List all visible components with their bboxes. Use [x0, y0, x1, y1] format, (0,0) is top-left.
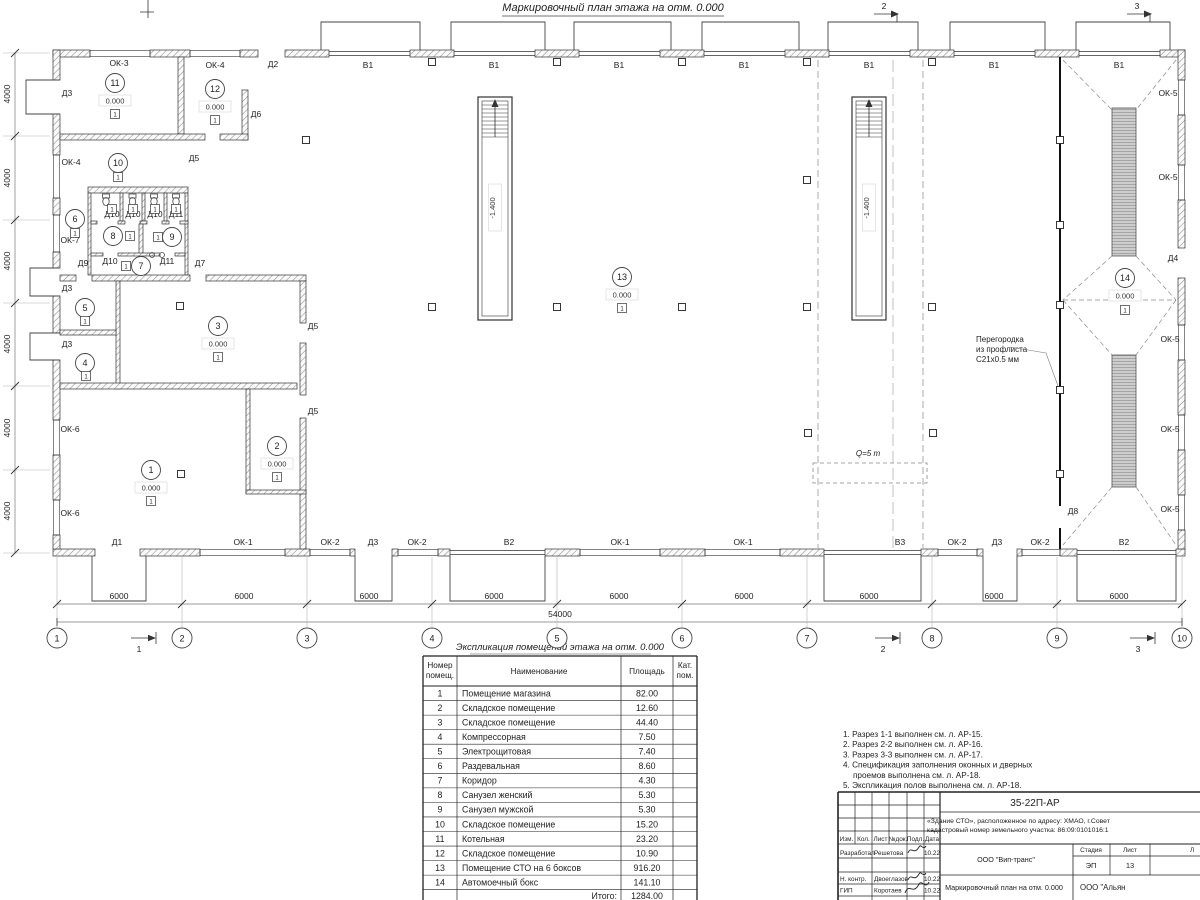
partition-annotation-line2: из профлиста: [976, 345, 1028, 354]
dim-label: 4000: [2, 501, 12, 520]
room-number: 9: [169, 232, 174, 242]
dim-label: 6000: [360, 591, 379, 601]
column-marker: [804, 59, 811, 66]
partition-annotation-line1: Перегородка: [976, 335, 1024, 344]
room-number: 8: [110, 231, 115, 241]
svg-text:10.22: 10.22: [924, 850, 940, 857]
column-marker: [178, 471, 185, 478]
room-number: 3: [215, 321, 220, 331]
column-marker: [554, 59, 561, 66]
table-cell-name: Коридор: [462, 776, 497, 786]
room-number: 14: [1120, 273, 1130, 283]
stage-value: ЭП: [1086, 861, 1097, 870]
grid-bubble-number: 4: [429, 634, 434, 644]
dim-label: 4000: [2, 84, 12, 103]
drawing-title: Маркировочный план на отм. 0.000: [945, 883, 1063, 892]
room-number: 13: [617, 272, 627, 282]
column-marker: [804, 304, 811, 311]
table-cell-number: 13: [435, 863, 445, 873]
opening-label: ОК-2: [407, 537, 426, 547]
room-number: 5: [82, 303, 87, 313]
grid-bubble-number: 10: [1177, 634, 1187, 644]
column-marker: [1057, 222, 1064, 229]
svg-text:Н. контр.: Н. контр.: [840, 876, 867, 883]
opening-label: ОК-5: [1160, 424, 1179, 434]
project-line1: «Здание СТО», расположенное по адресу: Х…: [927, 818, 1110, 825]
opening-label: В1: [614, 60, 625, 70]
grid-bubble-number: 7: [804, 634, 809, 644]
opening-label: В1: [1114, 60, 1125, 70]
svg-text:Кол.: Кол.: [857, 836, 870, 843]
svg-text:Лист: Лист: [1123, 847, 1137, 854]
note-line: 3. Разрез 3-3 выполнен см. л. АР-17.: [843, 750, 983, 759]
opening-label: В2: [504, 537, 515, 547]
svg-text:Двоеглазов: Двоеглазов: [874, 876, 909, 883]
opening-label: ОК-5: [1158, 172, 1177, 182]
grid-bubble-number: 2: [179, 634, 184, 644]
titleblock-texts: 35-22П-АР «Здание СТО», расположенное по…: [840, 798, 1195, 895]
opening-label: ОК-2: [1030, 537, 1049, 547]
dim-label: 4000: [2, 418, 12, 437]
svg-text:пом.: пом.: [677, 671, 694, 680]
svg-text:Коротаев: Коротаев: [874, 888, 902, 895]
table-cell-name: Котельная: [462, 834, 505, 844]
table-cell-area: 5.30: [638, 805, 655, 815]
table-cell-area: 141.10: [634, 877, 661, 887]
table-cell-area: 15.20: [636, 819, 658, 829]
grid-bubble-number: 5: [554, 634, 559, 644]
explication-total-value: 1284.00: [631, 891, 663, 900]
column-marker: [429, 304, 436, 311]
opening-label: Д6: [251, 109, 262, 119]
opening-label: ОК-5: [1158, 88, 1177, 98]
opening-label: Д3: [992, 537, 1003, 547]
grid-bubble-number: 6: [679, 634, 684, 644]
room-number: 1: [148, 465, 153, 475]
table-cell-name: Складское помещение: [462, 819, 555, 829]
canopies: [321, 22, 1170, 50]
column-marker: [929, 304, 936, 311]
dim-label: 6000: [1110, 591, 1129, 601]
org2: ООО "Альян: [1080, 883, 1125, 892]
svg-text:ГИП: ГИП: [840, 888, 853, 895]
svg-text:Стадия: Стадия: [1080, 847, 1102, 854]
crane-capacity-label: Q=5 т: [856, 449, 881, 458]
table-cell-area: 5.30: [638, 790, 655, 800]
column-marker: [929, 59, 936, 66]
partition-annotation-line3: С21х0.5 мм: [976, 355, 1019, 364]
table-cell-number: 8: [438, 790, 443, 800]
section-mark-number: 1: [137, 644, 142, 654]
svg-text:Разработал: Разработал: [840, 849, 875, 857]
opening-label: ОК-1: [733, 537, 752, 547]
svg-text:Номер: Номер: [427, 661, 453, 670]
table-cell-area: 7.50: [638, 732, 655, 742]
dim-label: 4000: [2, 334, 12, 353]
opening-label: ОК-1: [610, 537, 629, 547]
room-number: 2: [274, 441, 279, 451]
grid-bubble-number: 1: [54, 634, 59, 644]
table-cell-number: 5: [438, 747, 443, 757]
opening-label: Д3: [62, 88, 73, 98]
table-cell-name: Помещение магазина: [462, 688, 551, 698]
svg-text:Лист: Лист: [874, 836, 888, 843]
opening-label: Д3: [62, 339, 73, 349]
elevation-label: 0.000: [206, 103, 225, 112]
walls: [53, 50, 1185, 556]
svg-text:10.22: 10.22: [924, 876, 940, 883]
column-marker: [930, 430, 937, 437]
section-mark-number: 3: [1136, 644, 1141, 654]
dim-label: 6000: [860, 591, 879, 601]
room-number: 12: [210, 84, 220, 94]
elevation-label: 0.000: [268, 460, 287, 469]
section-mark-number: 2: [881, 644, 886, 654]
section-mark-number: 2: [882, 1, 887, 11]
dim-label: 6000: [485, 591, 504, 601]
table-cell-name: Санузел женский: [462, 790, 533, 800]
table-cell-number: 6: [438, 761, 443, 771]
gate-openings: [329, 52, 1176, 555]
column-marker: [804, 177, 811, 184]
column-marker: [805, 430, 812, 437]
dim-label: 4000: [2, 168, 12, 187]
page-title: Маркировочный план этажа на отм. 0.000: [502, 2, 724, 14]
room-number: 11: [110, 78, 119, 88]
opening-label: Д11: [160, 256, 175, 266]
opening-label: Д2: [268, 59, 279, 69]
table-cell-area: 23.20: [636, 834, 658, 844]
table-cell-name: Автомоечный бокс: [462, 877, 539, 887]
column-marker: [177, 303, 184, 310]
opening-label: Д10: [102, 256, 117, 266]
opening-label: Д5: [308, 406, 319, 416]
opening-label: ОК-2: [320, 537, 339, 547]
opening-label: В3: [895, 537, 906, 547]
opening-label: ОК-3: [109, 58, 128, 68]
dim-label: 6000: [735, 591, 754, 601]
svg-text:Дата: Дата: [925, 836, 940, 843]
opening-label: ОК-6: [60, 508, 79, 518]
table-cell-area: 12.60: [636, 703, 658, 713]
table-cell-area: 8.60: [638, 761, 655, 771]
elevation-label: 0.000: [142, 484, 161, 493]
floor-plan-sheet: Маркировочный план этажа на отм. 0.000: [0, 0, 1200, 900]
section-mark-number: 3: [1135, 1, 1140, 11]
section-mark-arrow: [148, 635, 156, 641]
grid-bubble-number: 8: [929, 634, 934, 644]
table-cell-name: Электрощитовая: [462, 747, 531, 757]
table-cell-name: Санузел мужской: [462, 805, 533, 815]
table-cell-area: 7.40: [638, 747, 655, 757]
elevation-label: 0.000: [1116, 292, 1135, 301]
column-marker: [1057, 387, 1064, 394]
svg-text:10.22: 10.22: [924, 888, 940, 895]
opening-label: ОК-4: [205, 60, 224, 70]
dim-label: 6000: [235, 591, 254, 601]
svg-text:№док.: №док.: [889, 836, 908, 843]
org1: ООО "Вип-транс": [977, 855, 1035, 864]
opening-label: Д5: [189, 153, 200, 163]
section-mark-arrow: [892, 635, 900, 641]
column-marker: [1057, 302, 1064, 309]
note-line: проемов выполнена см. л. АР-18.: [853, 771, 981, 780]
opening-label: Д3: [368, 537, 379, 547]
table-cell-number: 14: [435, 877, 445, 887]
opening-label: Д7: [195, 258, 206, 268]
svg-text:Решетова: Решетова: [874, 850, 904, 857]
svg-text:Л: Л: [1190, 847, 1194, 854]
column-marker: [554, 304, 561, 311]
svg-text:Кат.: Кат.: [678, 661, 692, 670]
pit-level-label: -1.400: [862, 197, 871, 218]
elevation-label: 0.000: [209, 340, 228, 349]
grid-bubble-number: 3: [304, 634, 309, 644]
opening-label: Д5: [308, 321, 319, 331]
table-cell-number: 1: [438, 688, 443, 698]
opening-label: В1: [739, 60, 750, 70]
table-cell-number: 12: [435, 848, 445, 858]
elevation-label: 0.000: [613, 291, 632, 300]
room-number: 10: [113, 158, 123, 168]
dim-total-label: 54000: [548, 609, 572, 619]
opening-label: Д8: [1068, 506, 1079, 516]
doc-code: 35-22П-АР: [1010, 798, 1060, 809]
column-marker: [679, 59, 686, 66]
pit-level-label: -1.400: [488, 197, 497, 218]
sheet-value: 13: [1126, 861, 1134, 870]
table-cell-name: Помещение СТО на 6 боксов: [462, 863, 581, 873]
table-cell-area: 44.40: [636, 717, 658, 727]
table-cell-number: 4: [438, 732, 443, 742]
table-cell-number: 10: [435, 819, 445, 829]
column-marker: [429, 59, 436, 66]
elevation-label: 0.000: [106, 97, 125, 106]
opening-label: В1: [489, 60, 500, 70]
opening-label: Д3: [62, 283, 73, 293]
opening-label: Д9: [78, 258, 89, 268]
table-cell-number: 11: [435, 834, 444, 844]
dim-label: 6000: [110, 591, 129, 601]
table-cell-name: Складское помещение: [462, 848, 555, 858]
room-number: 4: [82, 358, 87, 368]
table-cell-name: Компрессорная: [462, 732, 526, 742]
opening-label: ОК-1: [233, 537, 252, 547]
opening-label: ОК-5: [1160, 504, 1179, 514]
svg-text:Изм.: Изм.: [840, 836, 854, 843]
table-cell-number: 3: [438, 717, 443, 727]
table-cell-area: 916.20: [634, 863, 661, 873]
table-cell-name: Складское помещение: [462, 717, 555, 727]
project-line2: кадастровый номер земельного участка: 86…: [927, 826, 1109, 834]
table-cell-number: 7: [438, 776, 443, 786]
table-cell-area: 4.30: [638, 776, 655, 786]
dim-label: 6000: [610, 591, 629, 601]
opening-label: Д1: [112, 537, 123, 547]
column-marker: [1057, 471, 1064, 478]
opening-label: Д4: [1168, 253, 1179, 263]
section-mark-arrow: [1147, 635, 1155, 641]
table-cell-number: 9: [438, 805, 443, 815]
svg-text:Наименование: Наименование: [511, 667, 568, 676]
table-cell-name: Раздевальная: [462, 761, 520, 771]
table-cell-area: 82.00: [636, 688, 658, 698]
svg-text:помещ.: помещ.: [426, 671, 454, 680]
dim-label: 6000: [985, 591, 1004, 601]
svg-text:Площадь: Площадь: [629, 667, 665, 676]
grid-bubble-number: 9: [1054, 634, 1059, 644]
note-line: 1. Разрез 1-1 выполнен см. л. АР-15.: [843, 730, 983, 739]
dim-label: 4000: [2, 251, 12, 270]
svg-text:Подл.: Подл.: [907, 836, 924, 843]
opening-label: В2: [1119, 537, 1130, 547]
note-line: 4. Спецификация заполнения оконных и две…: [843, 761, 1032, 770]
column-marker: [679, 304, 686, 311]
table-cell-area: 10.90: [636, 848, 658, 858]
opening-label: ОК-5: [1160, 334, 1179, 344]
opening-label: ОК-6: [60, 424, 79, 434]
opening-label: ОК-4: [61, 157, 80, 167]
table-cell-number: 2: [438, 703, 443, 713]
room-number: 6: [72, 214, 77, 224]
opening-label: В1: [363, 60, 374, 70]
column-marker: [303, 137, 310, 144]
explication-header: Номер помещ. Наименование Площадь Кат. п…: [426, 661, 694, 680]
opening-label: В1: [864, 60, 875, 70]
explication-total-label: Итого:: [592, 891, 618, 900]
column-marker: [1057, 137, 1064, 144]
window-openings: [54, 51, 1185, 556]
note-line: 2. Разрез 2-2 выполнен см. л. АР-16.: [843, 740, 983, 749]
room-number: 7: [138, 261, 143, 271]
table-cell-name: Складское помещение: [462, 703, 555, 713]
opening-label: ОК-2: [947, 537, 966, 547]
note-line: 5. Экспликация полов выполнена см. л. АР…: [843, 781, 1022, 790]
opening-label: В1: [989, 60, 1000, 70]
